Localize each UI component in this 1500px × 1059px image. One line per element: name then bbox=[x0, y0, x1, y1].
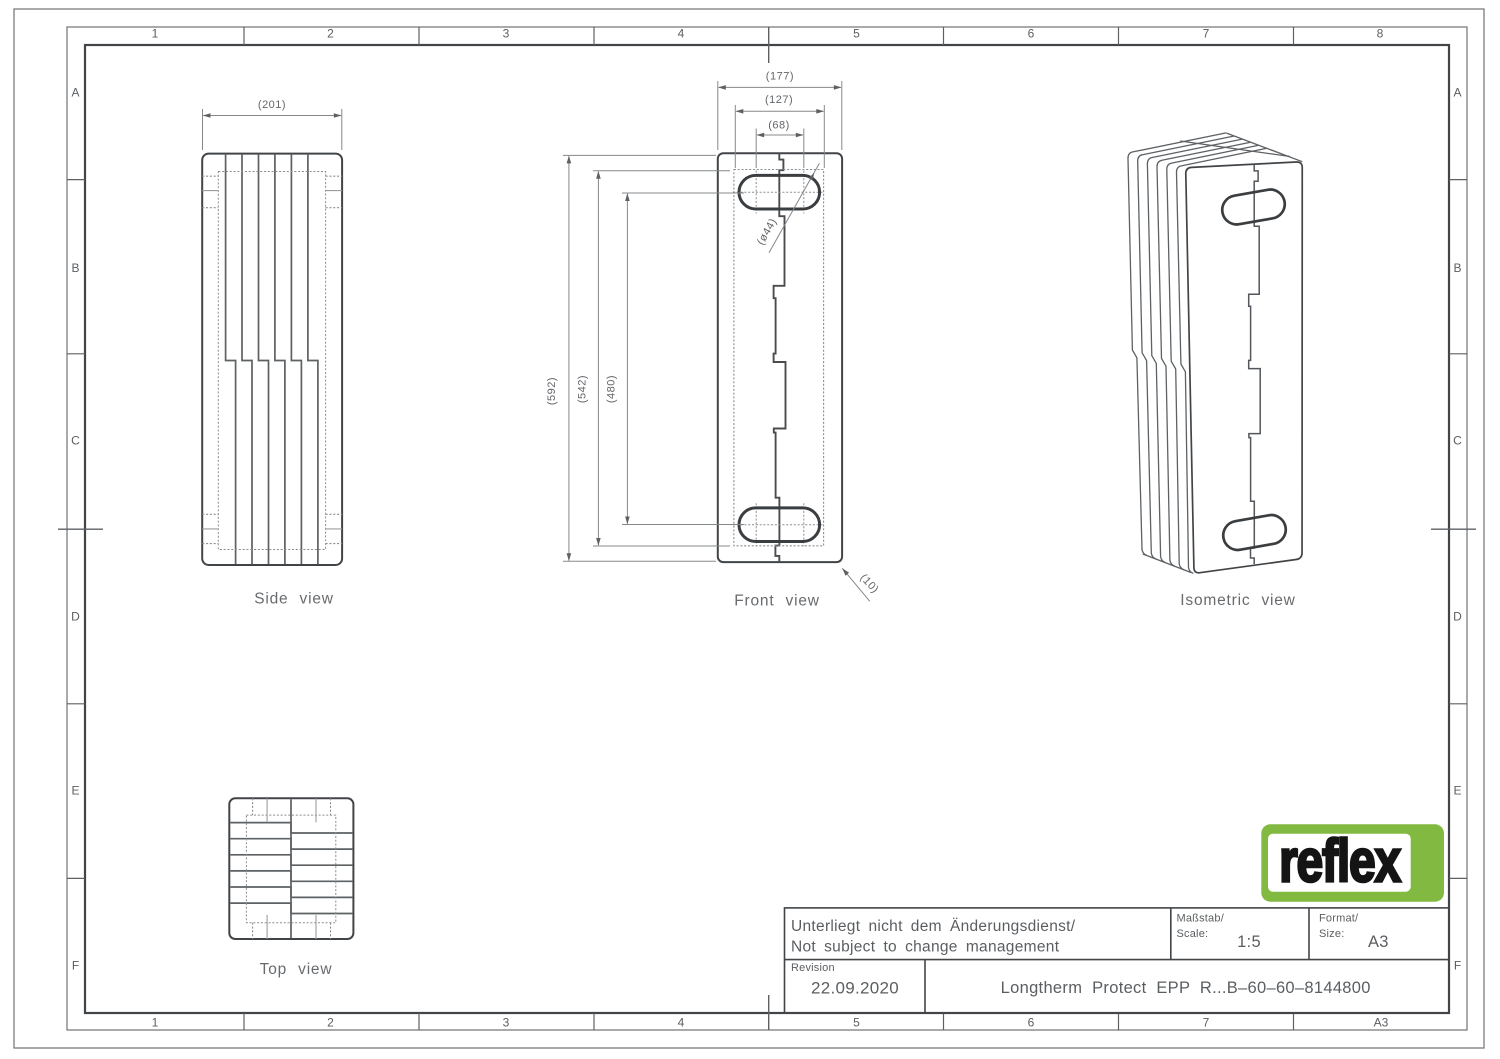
svg-text:7: 7 bbox=[1203, 1016, 1210, 1030]
svg-text:Top view: Top view bbox=[260, 961, 333, 978]
svg-text:D: D bbox=[1453, 610, 1462, 624]
svg-text:A3: A3 bbox=[1374, 1016, 1389, 1030]
svg-text:7: 7 bbox=[1203, 27, 1210, 41]
svg-text:(177): (177) bbox=[766, 70, 794, 82]
svg-text:4: 4 bbox=[678, 1016, 685, 1030]
svg-text:5: 5 bbox=[853, 1016, 860, 1030]
svg-text:6: 6 bbox=[1028, 27, 1035, 41]
svg-text:(201): (201) bbox=[258, 99, 286, 111]
svg-text:3: 3 bbox=[503, 27, 510, 41]
svg-text:B: B bbox=[71, 261, 79, 275]
svg-text:22.09.2020: 22.09.2020 bbox=[811, 979, 899, 998]
svg-text:(ø44): (ø44) bbox=[755, 216, 780, 247]
svg-text:6: 6 bbox=[1028, 1016, 1035, 1030]
svg-text:(68): (68) bbox=[768, 120, 790, 132]
svg-text:Size:: Size: bbox=[1319, 928, 1344, 940]
svg-text:8: 8 bbox=[1377, 27, 1384, 41]
svg-text:Longtherm Protect EPP R...B–60: Longtherm Protect EPP R...B–60–60–814480… bbox=[1001, 979, 1371, 997]
svg-text:A: A bbox=[1453, 86, 1461, 100]
svg-text:Isometric view: Isometric view bbox=[1180, 592, 1295, 609]
svg-text:1:5: 1:5 bbox=[1237, 933, 1261, 951]
svg-text:B: B bbox=[1453, 261, 1461, 275]
svg-text:Side view: Side view bbox=[254, 591, 334, 608]
svg-text:(592): (592) bbox=[546, 377, 558, 405]
svg-text:2: 2 bbox=[327, 27, 334, 41]
svg-text:Revision: Revision bbox=[791, 962, 835, 974]
svg-text:C: C bbox=[71, 434, 80, 448]
svg-text:Front view: Front view bbox=[734, 592, 820, 609]
svg-text:A: A bbox=[71, 86, 79, 100]
svg-text:3: 3 bbox=[503, 1016, 510, 1030]
svg-text:Format/: Format/ bbox=[1319, 913, 1359, 925]
svg-text:2: 2 bbox=[327, 1016, 334, 1030]
svg-text:Not subject to change manageme: Not subject to change management bbox=[791, 939, 1060, 956]
svg-text:(127): (127) bbox=[765, 94, 793, 106]
svg-text:(542): (542) bbox=[577, 375, 589, 403]
svg-text:A3: A3 bbox=[1368, 933, 1389, 951]
svg-text:Maßstab/: Maßstab/ bbox=[1177, 913, 1225, 925]
svg-text:(480): (480) bbox=[606, 375, 618, 403]
svg-text:D: D bbox=[71, 610, 80, 624]
svg-text:1: 1 bbox=[152, 1016, 159, 1030]
svg-text:F: F bbox=[72, 959, 79, 973]
svg-text:E: E bbox=[71, 784, 79, 798]
svg-text:(10): (10) bbox=[857, 572, 880, 596]
svg-text:C: C bbox=[1453, 434, 1462, 448]
svg-text:Unterliegt nicht dem Änderungs: Unterliegt nicht dem Änderungsdienst/ bbox=[791, 918, 1076, 935]
svg-text:5: 5 bbox=[853, 27, 860, 41]
svg-text:F: F bbox=[1454, 959, 1461, 973]
svg-text:4: 4 bbox=[678, 27, 685, 41]
svg-text:reflex: reflex bbox=[1279, 827, 1401, 894]
svg-text:Scale:: Scale: bbox=[1177, 928, 1209, 940]
svg-text:E: E bbox=[1453, 784, 1461, 798]
svg-text:1: 1 bbox=[152, 27, 159, 41]
